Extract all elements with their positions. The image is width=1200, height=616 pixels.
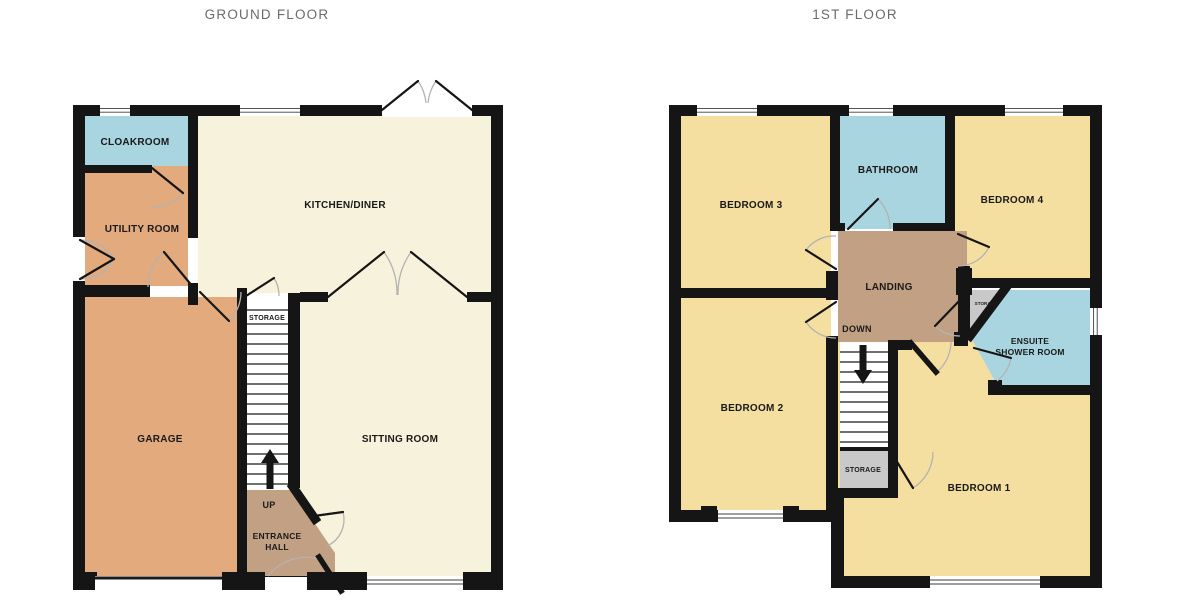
utility-door-opening	[73, 237, 85, 281]
garage-label: GARAGE	[137, 434, 182, 445]
entrance-hall-label-line1: ENTRANCE	[253, 531, 302, 541]
ground-floor-plan: GROUND FLOOR	[73, 7, 503, 591]
entrance-hall-label-line2: HALL	[265, 542, 288, 552]
bedroom2-label: BEDROOM 2	[721, 403, 784, 414]
bedroom3-label: BEDROOM 3	[720, 200, 783, 211]
utility-room-label: UTILITY ROOM	[105, 224, 179, 235]
small-storage-label: STORAGE	[975, 301, 998, 306]
sitting-room-label: SITTING ROOM	[362, 434, 438, 445]
ground-floor-title: GROUND FLOOR	[205, 7, 330, 22]
first-floor-plan: 1ST FLOOR	[669, 7, 1102, 588]
french-door-opening	[382, 104, 472, 117]
bedroom1-label: BEDROOM 1	[948, 483, 1011, 494]
ensuite-label-line2: SHOWER ROOM	[995, 347, 1064, 357]
floorplan-page: GROUND FLOOR	[0, 0, 1200, 616]
landing-floor-upper	[838, 231, 967, 288]
kitchen-diner-label: KITCHEN/DINER	[304, 200, 386, 211]
front-door-opening	[265, 577, 307, 590]
ensuite-label-line1: ENSUITE	[1011, 336, 1049, 346]
bedroom4-label: BEDROOM 4	[981, 195, 1044, 206]
floorplan-canvas: GROUND FLOOR	[0, 0, 1200, 616]
up-label: UP	[262, 500, 275, 510]
down-label: DOWN	[842, 324, 872, 334]
understairs-storage-label: STORAGE	[249, 315, 285, 322]
understairs-storage-label-first: STORAGE	[845, 467, 881, 474]
first-floor-title: 1ST FLOOR	[812, 7, 898, 22]
landing-label: LANDING	[865, 282, 912, 293]
cloakroom-label: CLOAKROOM	[101, 137, 170, 148]
bathroom-label: BATHROOM	[858, 165, 918, 176]
